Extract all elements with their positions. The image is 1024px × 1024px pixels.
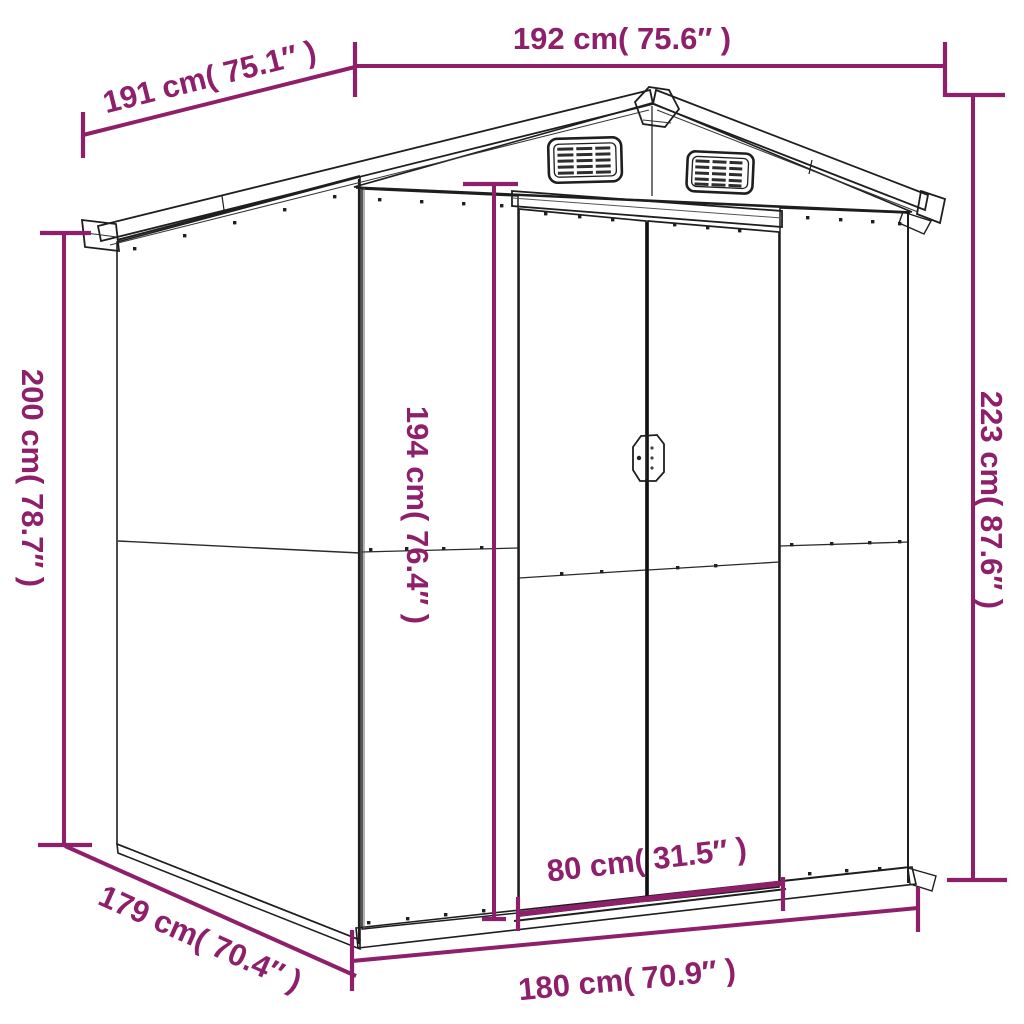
- dim-roof-depth-191: 191 cm( 75.1″ ): [83, 33, 355, 158]
- dim-label-223: 223 cm( 87.6″ ): [974, 391, 1009, 609]
- dim-wall-height-200: 200 cm( 78.7″ ): [15, 233, 92, 845]
- front-wall-right-section: [780, 208, 908, 881]
- base-foot-right: [908, 868, 936, 891]
- roof-vent-right: [686, 151, 754, 194]
- dim-label-191: 191 cm( 75.1″ ): [99, 33, 319, 120]
- sliding-door-right: [648, 221, 779, 901]
- roof: [82, 87, 945, 251]
- roof-gutter-corner-right: [899, 212, 931, 234]
- sliding-door-left: [519, 209, 646, 916]
- dim-roof-width-192: 192 cm( 75.6″ ): [355, 21, 945, 97]
- left-side-wall: [117, 176, 360, 949]
- dim-total-height-223: 223 cm( 87.6″ ): [947, 95, 1009, 880]
- dim-label-192: 192 cm( 75.6″ ): [513, 21, 731, 56]
- roof-vent-left: [548, 137, 622, 183]
- dim-label-194: 194 cm( 76.4″ ): [400, 406, 435, 624]
- dim-base-depth-179: 179 cm( 70.4″ ): [65, 846, 356, 999]
- shed-diagram-svg: 191 cm( 75.1″ ) 192 cm( 75.6″ ) 200 cm( …: [0, 0, 1024, 1024]
- screw-dots: [133, 195, 901, 924]
- dimension-diagram: 191 cm( 75.1″ ) 192 cm( 75.6″ ) 200 cm( …: [0, 0, 1024, 1024]
- dim-label-200: 200 cm( 78.7″ ): [15, 369, 50, 587]
- side-wall-seam: [118, 541, 360, 553]
- dim-label-180: 180 cm( 70.9″ ): [517, 952, 738, 1007]
- dim-door-height-194: 194 cm( 76.4″ ): [400, 184, 518, 919]
- door-bottom-rail: [514, 889, 786, 921]
- dim-base-width-180: 180 cm( 70.9″ ): [352, 887, 918, 1007]
